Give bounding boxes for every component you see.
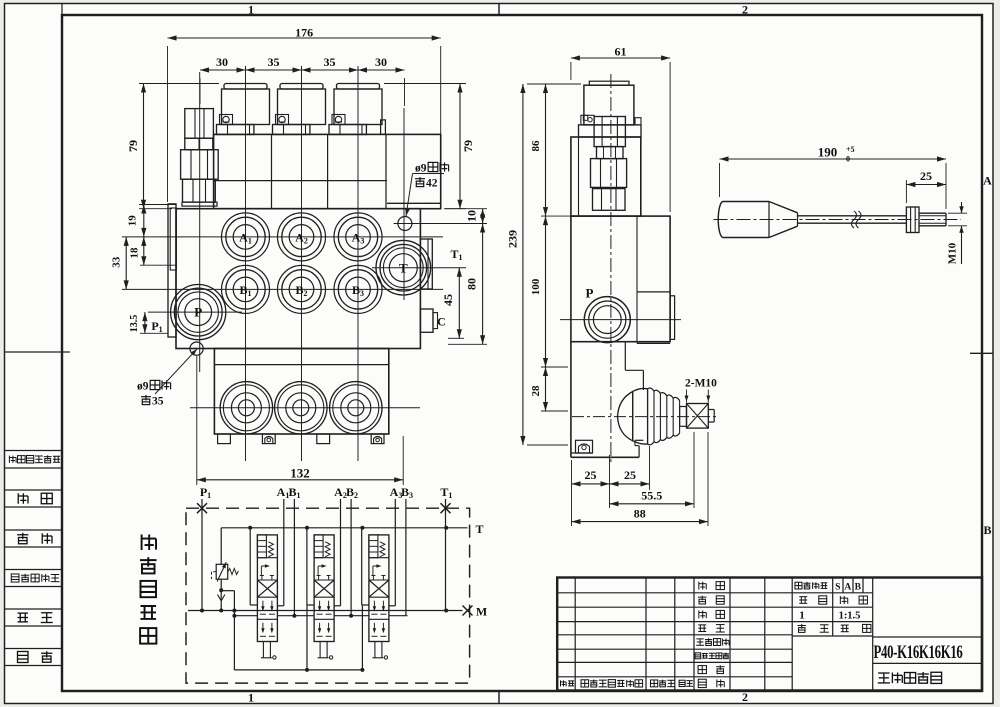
svg-text:25: 25	[624, 468, 636, 482]
svg-text:35: 35	[152, 396, 164, 408]
svg-text:28: 28	[530, 385, 542, 397]
svg-text:1: 1	[799, 610, 805, 622]
svg-text:ø9: ø9	[415, 163, 427, 175]
svg-text:10: 10	[465, 210, 479, 222]
svg-text:T: T	[399, 260, 408, 275]
svg-text:100: 100	[530, 278, 542, 295]
svg-text:S: S	[835, 583, 840, 593]
svg-text:88: 88	[634, 507, 646, 521]
svg-text:30: 30	[216, 55, 228, 69]
svg-text:ø9: ø9	[137, 381, 149, 393]
svg-text:T: T	[475, 522, 483, 536]
svg-text:33: 33	[111, 256, 123, 268]
svg-text:42: 42	[426, 178, 438, 190]
svg-text:2: 2	[742, 690, 748, 704]
svg-text:M: M	[476, 605, 487, 619]
svg-text:19: 19	[127, 215, 139, 227]
svg-text:30: 30	[375, 55, 387, 69]
svg-text:79: 79	[461, 140, 475, 152]
svg-text:P: P	[194, 305, 202, 320]
svg-text:80: 80	[465, 278, 479, 290]
svg-text:P: P	[586, 286, 594, 301]
svg-text:45: 45	[441, 294, 455, 306]
svg-text:25: 25	[920, 169, 932, 183]
svg-text:13.5: 13.5	[129, 315, 140, 333]
svg-text:B: B	[983, 523, 991, 537]
svg-text:B: B	[855, 583, 862, 593]
svg-text:35: 35	[324, 55, 336, 69]
svg-text:A: A	[983, 174, 992, 188]
svg-text:79: 79	[126, 140, 140, 152]
svg-text:190: 190	[818, 145, 838, 160]
svg-text:P40-K16K16K16: P40-K16K16K16	[874, 640, 963, 662]
svg-text:0: 0	[846, 155, 850, 164]
svg-text:61: 61	[615, 45, 627, 59]
svg-text:1:1.5: 1:1.5	[839, 611, 861, 622]
svg-text:239: 239	[506, 230, 520, 248]
svg-text:A: A	[844, 583, 851, 593]
svg-text:1: 1	[248, 3, 254, 17]
svg-text:C: C	[437, 315, 446, 329]
svg-text:86: 86	[530, 140, 542, 152]
svg-text:55.5: 55.5	[641, 489, 662, 503]
svg-text:176: 176	[295, 26, 313, 40]
svg-text:2: 2	[742, 3, 748, 17]
svg-text:25: 25	[585, 468, 597, 482]
svg-text:+5: +5	[846, 145, 855, 154]
svg-text:2-M10: 2-M10	[685, 378, 717, 390]
svg-text:1: 1	[248, 691, 254, 705]
svg-text:M10: M10	[947, 242, 959, 264]
svg-text:35: 35	[268, 55, 280, 69]
svg-text:18: 18	[129, 247, 141, 259]
svg-text:132: 132	[290, 466, 310, 481]
